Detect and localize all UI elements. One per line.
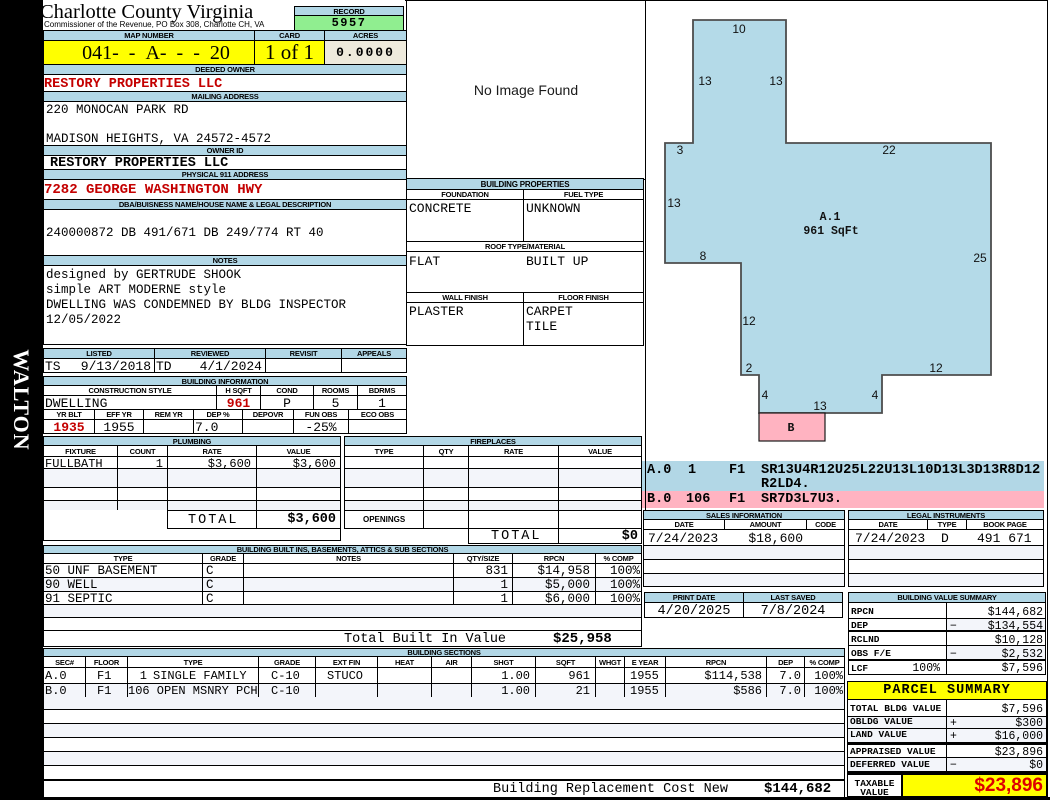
svg-text:4: 4 bbox=[872, 388, 879, 402]
svg-text:10: 10 bbox=[732, 22, 746, 36]
svg-text:2: 2 bbox=[746, 361, 753, 375]
svg-text:13: 13 bbox=[769, 74, 783, 88]
svg-text:22: 22 bbox=[882, 143, 896, 157]
svg-text:12: 12 bbox=[929, 361, 943, 375]
svg-text:B: B bbox=[788, 422, 795, 435]
svg-text:12: 12 bbox=[742, 314, 756, 328]
svg-text:4: 4 bbox=[762, 388, 769, 402]
svg-text:13: 13 bbox=[698, 74, 712, 88]
svg-text:8: 8 bbox=[700, 249, 707, 263]
svg-text:13: 13 bbox=[813, 399, 827, 413]
svg-text:25: 25 bbox=[973, 251, 987, 265]
svg-text:3: 3 bbox=[677, 143, 684, 157]
svg-text:A.1: A.1 bbox=[820, 211, 841, 224]
svg-text:13: 13 bbox=[667, 196, 681, 210]
svg-text:961 SqFt: 961 SqFt bbox=[803, 225, 858, 238]
